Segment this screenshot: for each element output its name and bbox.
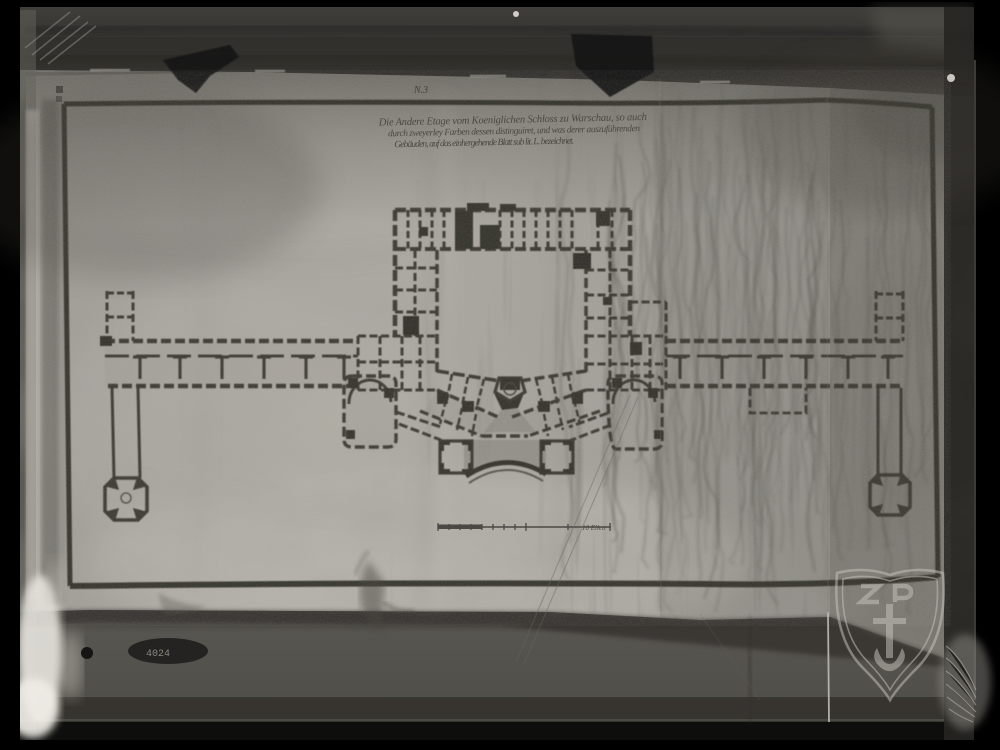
svg-text:4024: 4024 — [146, 649, 170, 660]
